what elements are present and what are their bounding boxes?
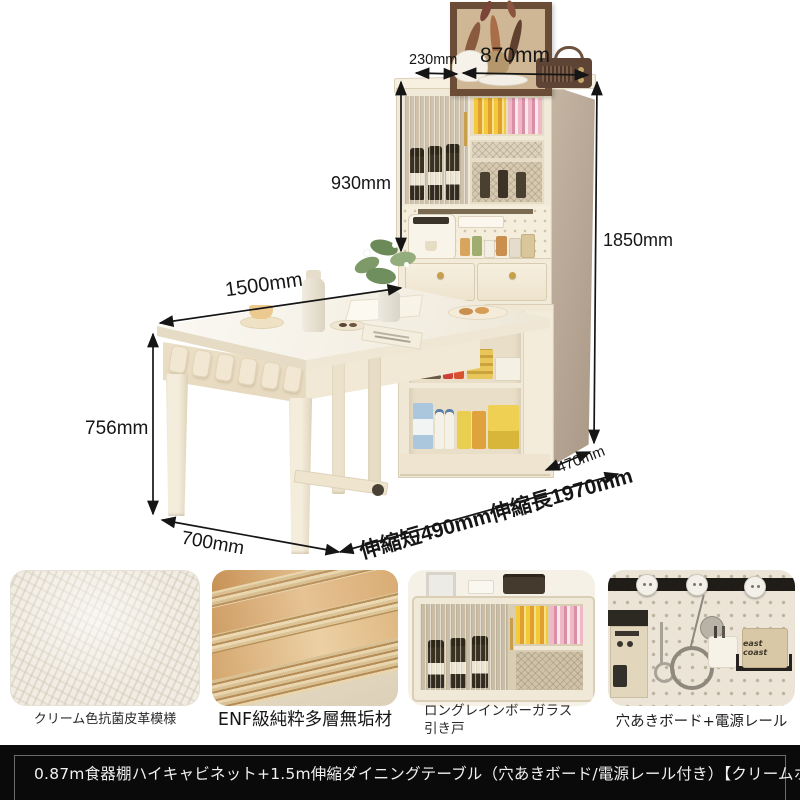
portafilter — [613, 665, 627, 687]
leaf — [365, 266, 397, 285]
mini-cabinet-interior — [420, 604, 583, 690]
feature-thumb-pegboard: east coast — [608, 570, 795, 706]
cereal-box — [488, 405, 519, 449]
radio-knob — [578, 77, 584, 83]
utensil — [714, 626, 717, 638]
mid-open-section — [400, 206, 550, 258]
slide-frame-bar — [368, 340, 381, 486]
mini-cups — [468, 580, 494, 594]
milk-bottle — [445, 409, 454, 449]
thermos — [302, 278, 325, 332]
hutch-shelf-right — [470, 96, 544, 204]
rail-bracket — [789, 654, 792, 668]
dim-table-height: 756mm — [85, 418, 148, 440]
dark-glass — [480, 172, 490, 198]
sliding-panel — [523, 311, 552, 471]
tissue-box — [495, 357, 521, 381]
bowl-stack — [478, 74, 528, 86]
radio-knob — [578, 67, 584, 73]
juice-box — [472, 411, 486, 449]
drawer-knob — [509, 272, 516, 279]
dim-cabinet-width: 870mm — [480, 44, 550, 68]
coffee-machine-top — [413, 217, 449, 224]
snack — [349, 323, 357, 327]
apron-panel — [168, 345, 189, 374]
product-infographic: 230mm 870mm 930mm 1850mm 1500mm 756mm 70… — [0, 0, 800, 800]
cabinet-base — [400, 454, 550, 476]
machine-slot — [615, 631, 639, 636]
hook-module — [458, 216, 504, 228]
feature-caption-pegboard: 穴あきボード+電源レール — [608, 710, 795, 731]
product-title: 0.87m食器棚ハイキャビネット+1.5m伸縮ダイニングテーブル（穴あきボード/… — [34, 745, 800, 800]
mini-glass-door — [420, 604, 508, 690]
spice-jar — [496, 236, 507, 256]
feature-caption-leather: クリーム色抗菌皮革模様 — [10, 708, 200, 727]
teacup — [249, 305, 273, 319]
white-flower — [404, 262, 409, 267]
hanging-ladle — [660, 622, 663, 664]
dim-table-length: 1500mm — [224, 269, 304, 303]
mini-espresso-machine — [608, 610, 648, 702]
feature-thumb-plywood — [212, 570, 398, 706]
apron-panel — [260, 361, 281, 390]
slide-frame-bar — [332, 352, 345, 494]
snack-boxes-yellow — [474, 98, 506, 134]
machine-body — [610, 626, 648, 698]
table-leg-front-left — [166, 374, 188, 516]
utensil — [722, 626, 725, 638]
power-socket — [636, 574, 658, 596]
feature-caption-glass-door: ロングレインボーガラス引き戸 — [424, 702, 582, 738]
pastry-plate — [448, 305, 508, 320]
snack-boxes-pink — [508, 98, 542, 134]
plant-vase — [378, 292, 400, 322]
milk-carton — [413, 403, 433, 449]
caster-wheel — [372, 484, 384, 496]
wire-basket — [516, 652, 583, 690]
dim-hutch-height: 930mm — [331, 173, 391, 194]
juice-box — [457, 411, 471, 449]
spice-jar — [509, 238, 521, 258]
drawer-knob — [437, 272, 444, 279]
rail-bracket — [736, 654, 739, 668]
glass-door-left — [404, 96, 468, 204]
snack-plate — [330, 320, 366, 331]
spice-jar — [460, 238, 470, 256]
shelf-board — [409, 383, 521, 388]
feature-thumb-leather — [10, 570, 200, 706]
glassware-shelf — [472, 142, 542, 158]
product-title-bar: 0.87m食器棚ハイキャビネット+1.5m伸縮ダイニングテーブル（穴あきボード/… — [0, 745, 800, 800]
drawer-right — [477, 263, 547, 301]
machine-knob — [627, 641, 633, 647]
furniture-scene: 230mm 870mm 930mm 1850mm 1500mm 756mm 70… — [0, 0, 800, 565]
snack-boxes-pink — [550, 606, 583, 644]
dark-glass — [498, 170, 508, 198]
shelf-board — [470, 136, 544, 140]
croissant — [459, 308, 473, 315]
power-socket — [744, 576, 766, 598]
croissant — [475, 307, 489, 314]
dark-glass — [516, 172, 526, 198]
spice-jar — [484, 240, 495, 258]
ribbed-glass-texture — [404, 96, 468, 204]
apron-panel — [191, 349, 212, 378]
ribbed-glass-texture — [420, 604, 508, 690]
dim-total-height: 1850mm — [603, 230, 673, 251]
white-flower — [392, 242, 398, 248]
apron-panel — [214, 353, 235, 382]
apron-panel — [237, 357, 258, 386]
machine-knob — [617, 641, 623, 647]
radio-grill — [542, 66, 572, 82]
mini-speaker — [503, 574, 545, 594]
coffee-bag: east coast — [742, 628, 788, 668]
spice-jar — [472, 236, 482, 256]
utensil-holder — [708, 636, 738, 668]
dim-table-width: 700mm — [180, 528, 246, 561]
door-handle — [464, 112, 467, 146]
snack-boxes-yellow — [516, 606, 548, 644]
wire-basket — [472, 162, 542, 202]
mini-handle — [510, 618, 513, 650]
white-flower — [364, 250, 370, 256]
arrow-1850 — [594, 82, 597, 443]
mini-cabinet-body — [412, 596, 595, 702]
coffee-bag-label: east coast — [743, 639, 787, 657]
coffee-cup — [425, 241, 437, 251]
machine-top — [608, 610, 648, 626]
milk-bottle — [435, 409, 444, 449]
feature-thumb-glass-door — [408, 570, 595, 706]
dim-top-depth: 230mm — [409, 52, 457, 68]
snack — [339, 323, 347, 327]
shelf-board — [514, 646, 583, 650]
feature-caption-plywood: ENF級純粋多層無垢材 — [206, 706, 404, 731]
spice-jar — [521, 234, 535, 258]
power-socket — [686, 574, 708, 596]
